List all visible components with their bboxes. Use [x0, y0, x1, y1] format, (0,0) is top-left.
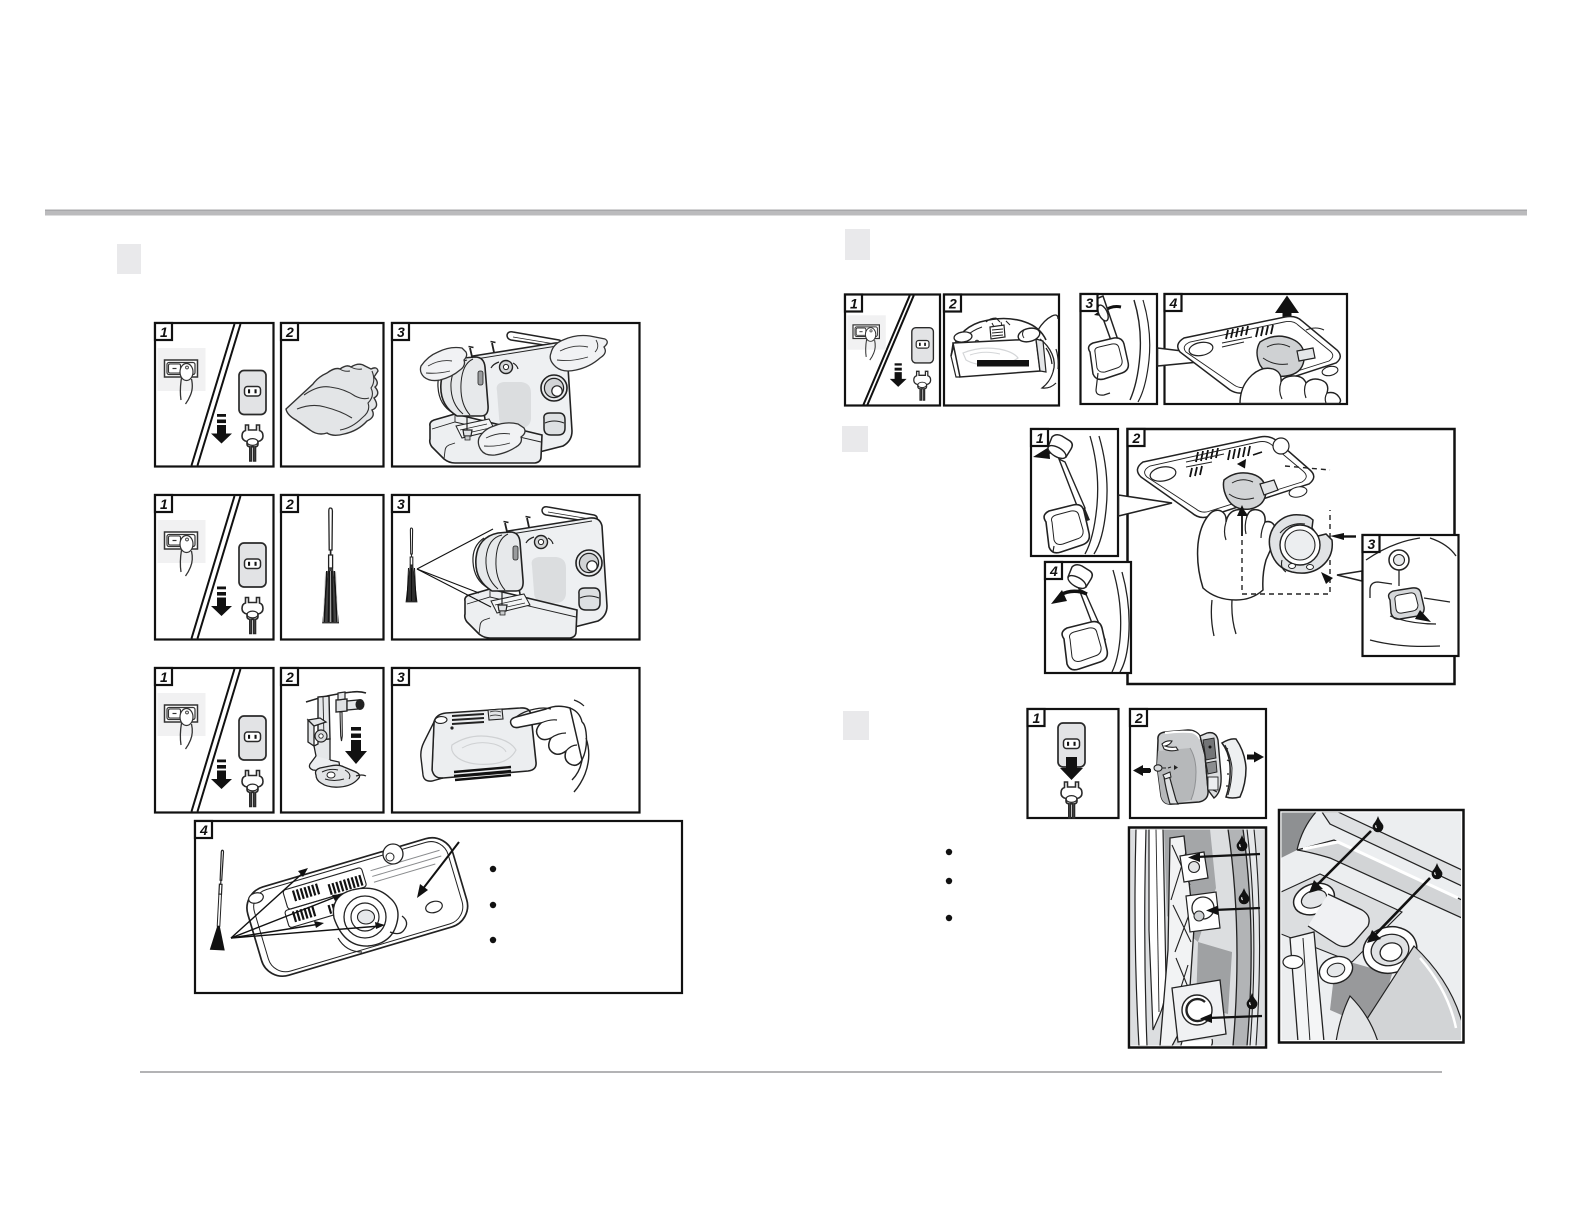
svg-text:3: 3 [397, 324, 405, 340]
svg-text:1: 1 [850, 296, 858, 312]
svg-text:2: 2 [285, 669, 294, 685]
svg-text:2: 2 [1132, 430, 1141, 446]
svg-text:1: 1 [160, 496, 168, 512]
svg-text:4: 4 [199, 822, 208, 838]
svg-text:3: 3 [397, 496, 405, 512]
svg-text:3: 3 [1086, 295, 1094, 311]
svg-text:2: 2 [948, 296, 957, 312]
svg-text:1: 1 [160, 669, 168, 685]
svg-text:4: 4 [1169, 295, 1178, 311]
svg-text:4: 4 [1049, 563, 1058, 579]
svg-text:2: 2 [285, 324, 294, 340]
svg-text:2: 2 [285, 496, 294, 512]
svg-text:1: 1 [1033, 710, 1041, 726]
svg-text:1: 1 [160, 324, 168, 340]
svg-text:2: 2 [1134, 710, 1143, 726]
svg-text:3: 3 [1368, 536, 1376, 552]
svg-text:1: 1 [1036, 430, 1044, 446]
svg-text:3: 3 [397, 669, 405, 685]
